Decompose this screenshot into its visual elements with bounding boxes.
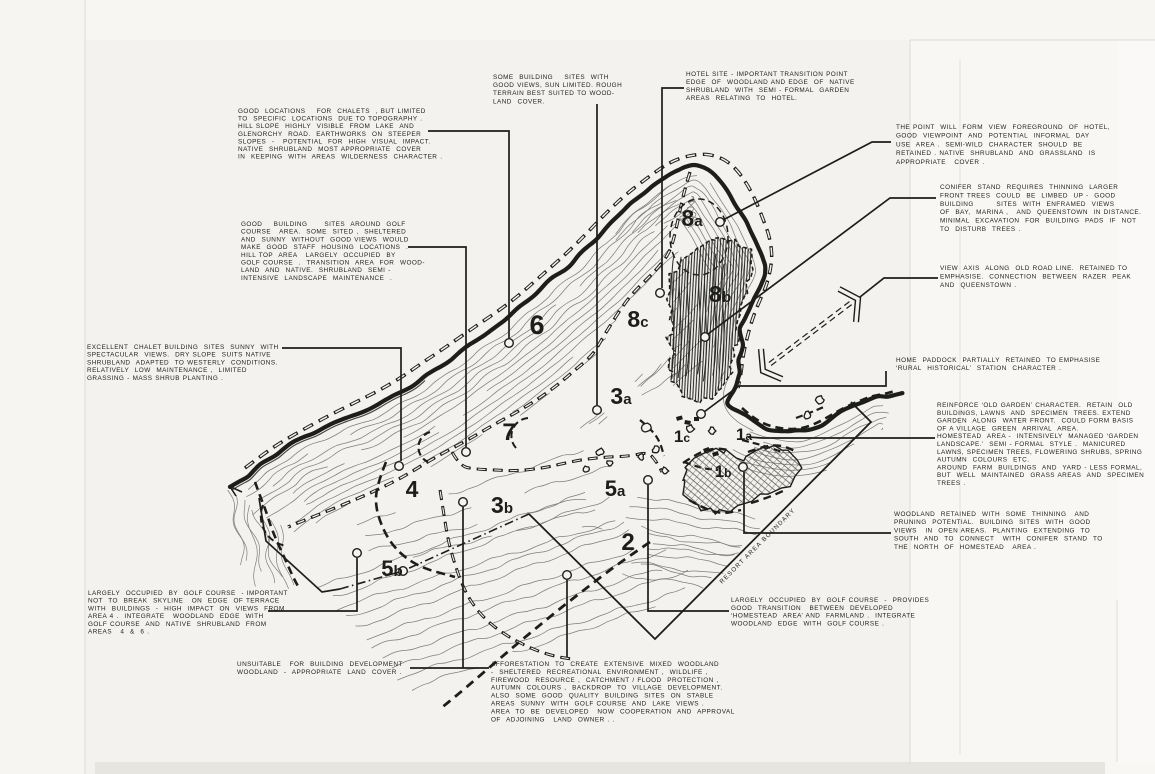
svg-text:AFFORESTATION TO CREATE EXT: AFFORESTATION TO CREATE EXTENSIVE MIXED … <box>491 661 735 723</box>
svg-text:GOOD LOCATIONS FOR CHALET: GOOD LOCATIONS FOR CHALETS , BUT LIMITED… <box>238 108 442 161</box>
svg-text:2: 2 <box>621 529 634 556</box>
svg-text:UNSUITABLE FOR BUILDING DE: UNSUITABLE FOR BUILDING DEVELOPMENTWOODL… <box>237 661 403 676</box>
svg-text:REINFORCE ‘OLD GARDEN’ CHARACT: REINFORCE ‘OLD GARDEN’ CHARACTER. RETAIN… <box>937 402 1144 487</box>
svg-text:7: 7 <box>502 419 515 446</box>
svg-text:6: 6 <box>529 310 544 340</box>
svg-text:4: 4 <box>406 476 419 502</box>
